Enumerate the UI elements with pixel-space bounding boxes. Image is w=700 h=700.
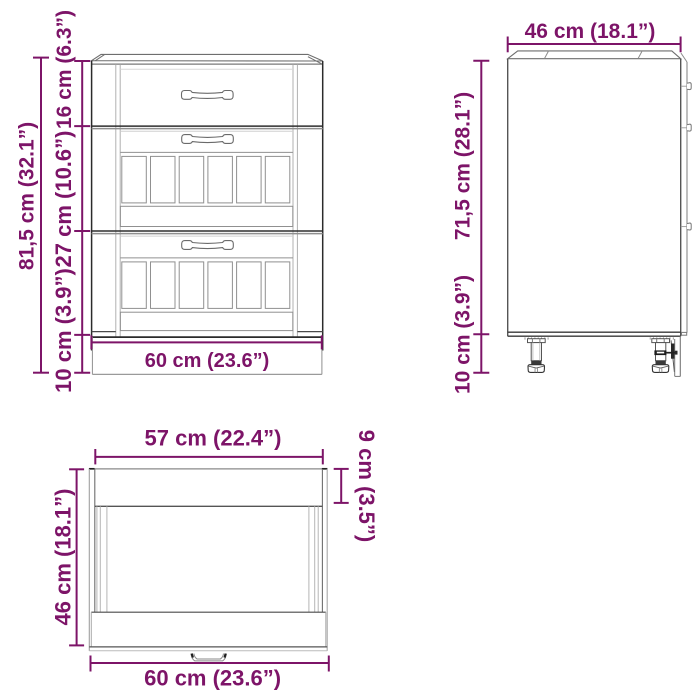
svg-text:16 cm (6.3”): 16 cm (6.3”)	[53, 10, 76, 129]
svg-text:9 cm (3.5”): 9 cm (3.5”)	[354, 430, 379, 543]
svg-text:60 cm (23.6”): 60 cm (23.6”)	[145, 350, 270, 372]
svg-text:60 cm (23.6”): 60 cm (23.6”)	[144, 666, 281, 691]
svg-text:10 cm (3.9”): 10 cm (3.9”)	[452, 275, 475, 394]
svg-text:81,5 cm (32.1”): 81,5 cm (32.1”)	[16, 122, 39, 270]
svg-text:46 cm (18.1”): 46 cm (18.1”)	[51, 489, 76, 626]
svg-text:57 cm (22.4”): 57 cm (22.4”)	[145, 426, 282, 451]
svg-text:10 cm (3.9”): 10 cm (3.9”)	[51, 268, 76, 393]
svg-text:46 cm (18.1”): 46 cm (18.1”)	[525, 20, 656, 43]
svg-text:27 cm (10.6”): 27 cm (10.6”)	[51, 131, 76, 268]
svg-text:71,5 cm (28.1”): 71,5 cm (28.1”)	[452, 92, 475, 240]
